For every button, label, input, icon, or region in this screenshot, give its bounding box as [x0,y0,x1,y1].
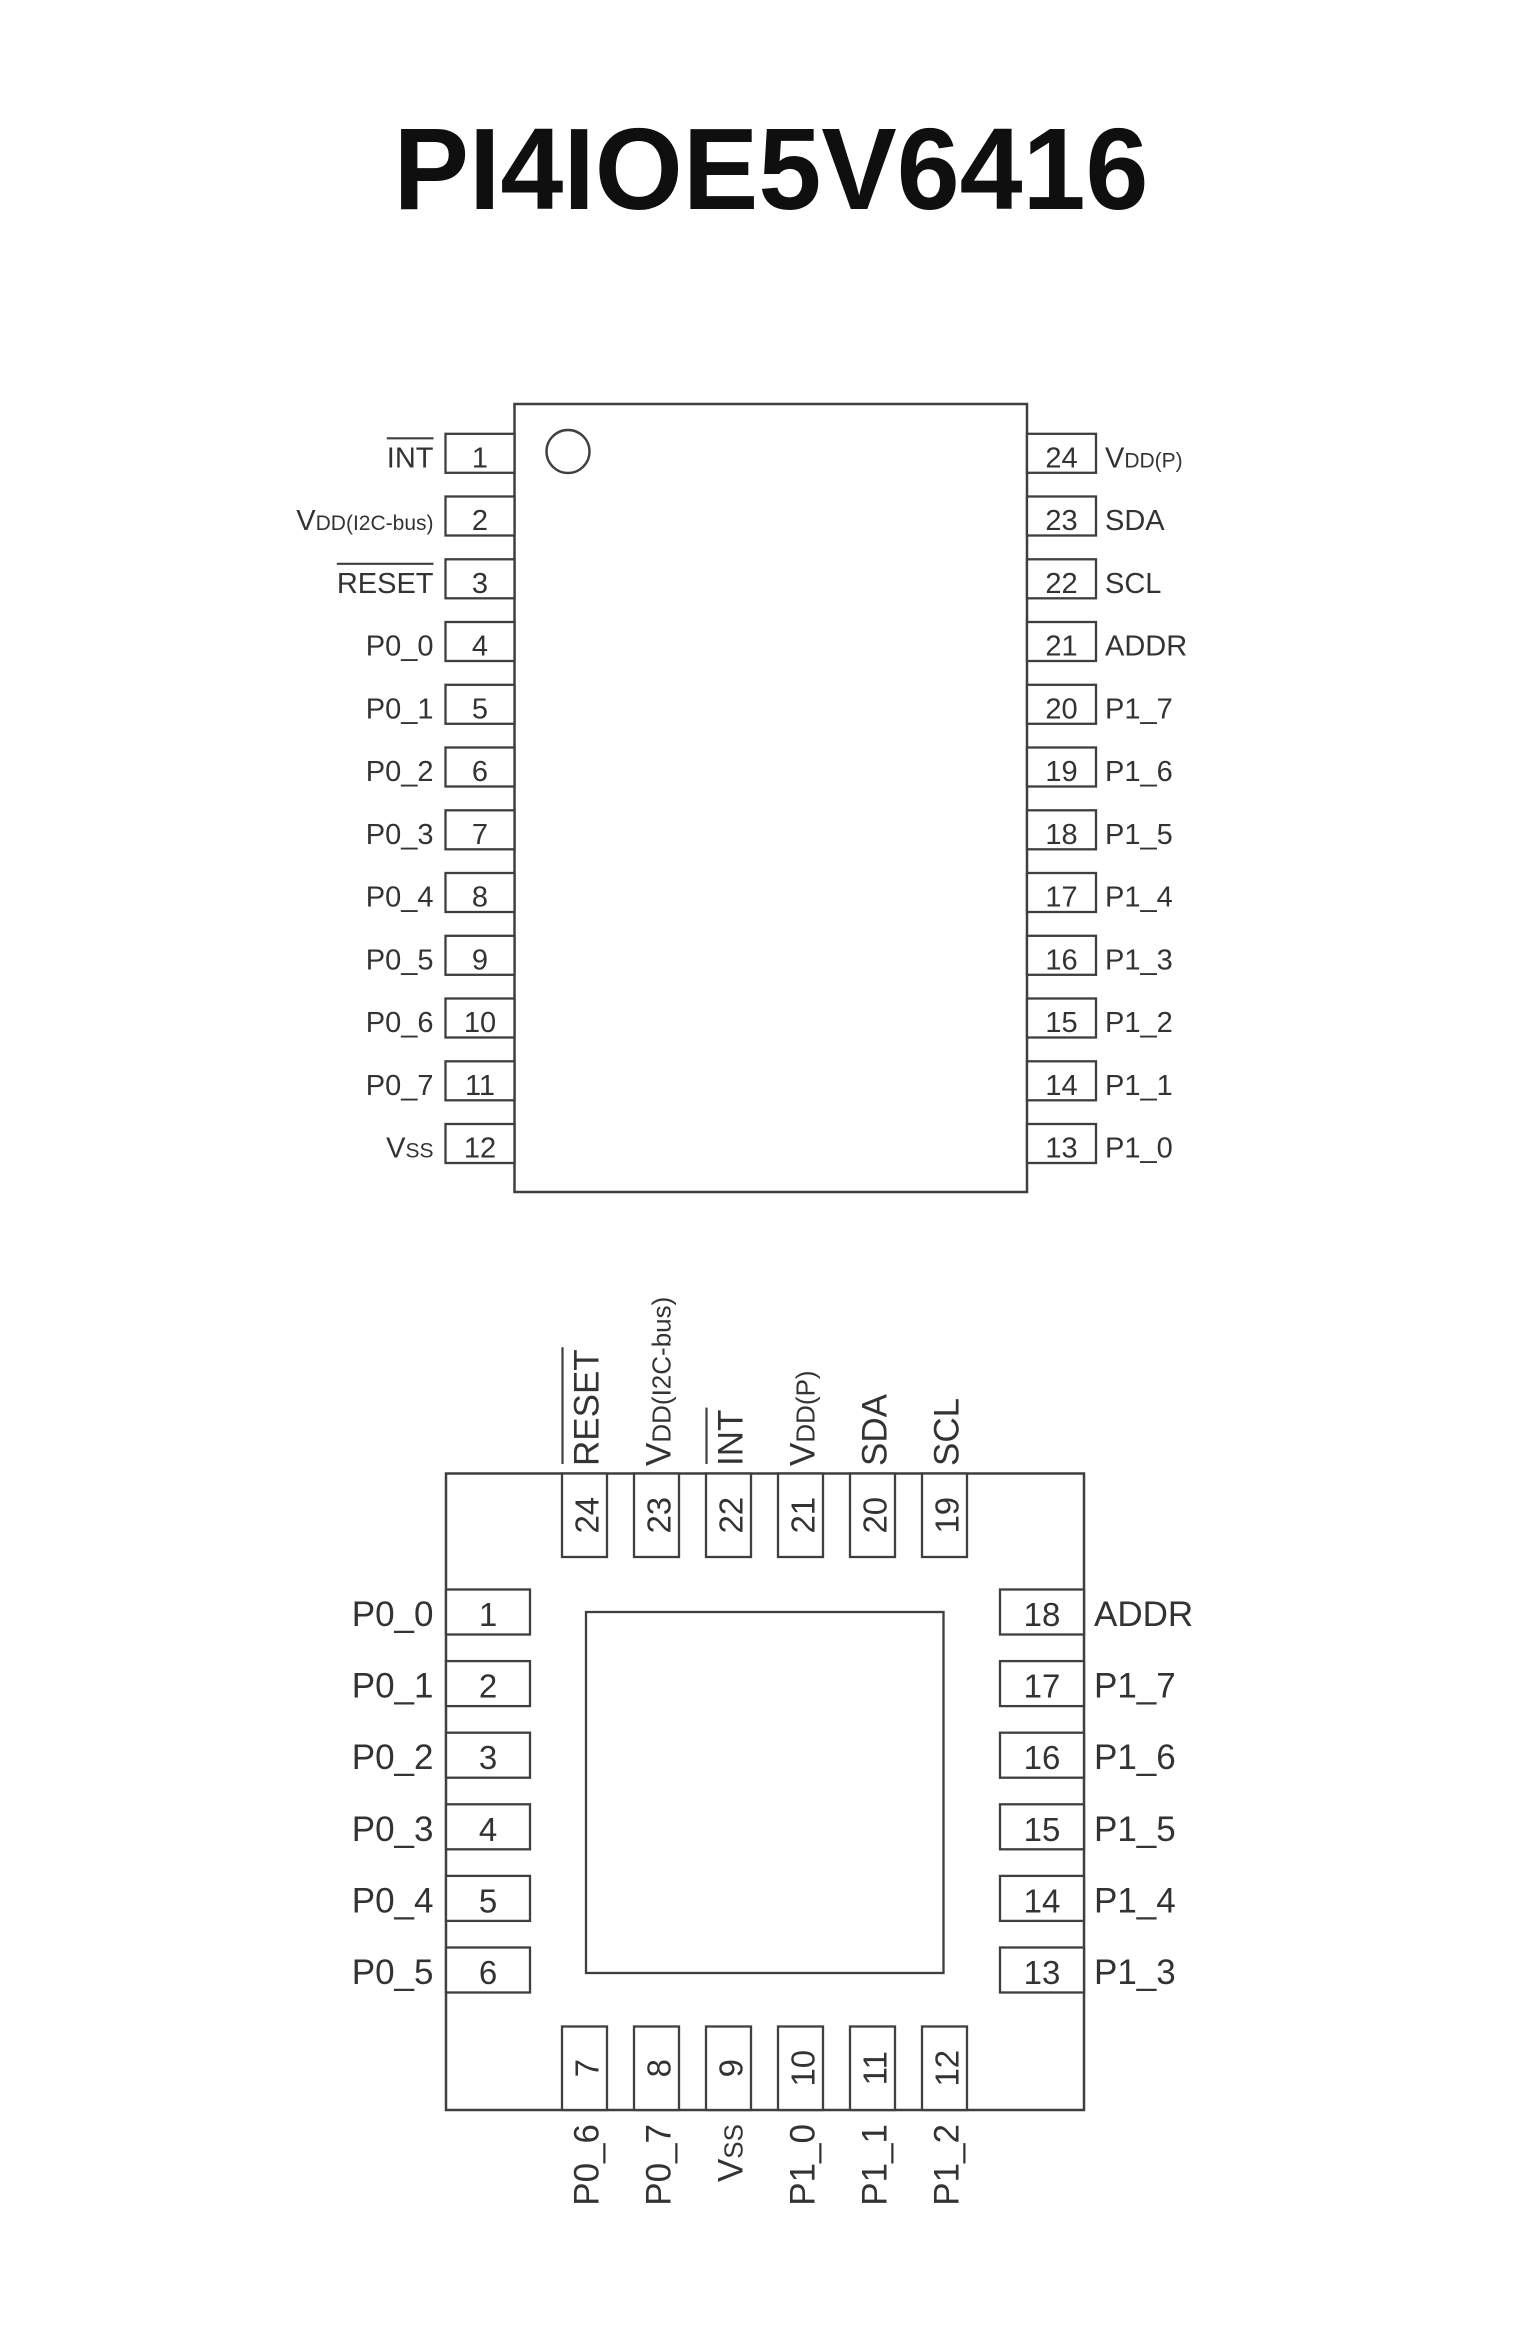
svg-text:7: 7 [569,2059,606,2077]
svg-text:10: 10 [785,2050,822,2087]
svg-text:8: 8 [472,882,488,914]
svg-text:P1_4: P1_4 [1094,1881,1176,1920]
svg-text:PI4IOE5V6416: PI4IOE5V6416 [394,104,1149,234]
svg-text:13: 13 [1045,1133,1077,1165]
svg-text:P0_3: P0_3 [366,819,434,851]
svg-text:24: 24 [1045,442,1077,474]
svg-text:5: 5 [472,693,488,725]
svg-text:3: 3 [479,1739,497,1776]
svg-text:P0_6: P0_6 [366,1007,434,1039]
svg-text:P1_2: P1_2 [1105,1007,1173,1039]
svg-text:P0_1: P0_1 [352,1667,434,1706]
svg-text:11: 11 [465,1070,495,1102]
svg-text:P1_0: P1_0 [1105,1133,1173,1165]
svg-text:22: 22 [1045,568,1077,600]
svg-text:10: 10 [464,1007,496,1039]
svg-text:17: 17 [1024,1668,1061,1705]
svg-text:P1_7: P1_7 [1105,693,1173,725]
svg-text:16: 16 [1045,944,1077,976]
svg-text:P0_0: P0_0 [366,631,434,663]
svg-text:P0_4: P0_4 [352,1881,434,1920]
svg-text:22: 22 [713,1497,750,1534]
svg-text:19: 19 [929,1497,966,1534]
svg-text:P1_0: P1_0 [784,2124,823,2206]
svg-text:15: 15 [1024,1811,1061,1848]
svg-text:P0_5: P0_5 [352,1953,434,1992]
svg-text:15: 15 [1045,1007,1077,1039]
svg-text:SDA: SDA [1105,505,1165,537]
svg-text:P0_0: P0_0 [352,1595,434,1634]
svg-text:P1_5: P1_5 [1094,1810,1176,1849]
svg-text:13: 13 [1024,1954,1061,1991]
svg-text:P0_6: P0_6 [568,2124,607,2206]
svg-text:18: 18 [1045,819,1077,851]
svg-text:14: 14 [1045,1070,1077,1102]
svg-text:P0_7: P0_7 [640,2124,679,2206]
svg-text:3: 3 [472,568,488,600]
svg-text:5: 5 [479,1882,497,1919]
svg-text:19: 19 [1045,756,1077,788]
svg-text:7: 7 [472,819,488,851]
svg-text:17: 17 [1045,882,1077,914]
svg-text:P0_1: P0_1 [366,693,434,725]
svg-text:24: 24 [569,1497,606,1534]
svg-text:23: 23 [1045,505,1077,537]
svg-text:20: 20 [857,1497,894,1534]
svg-text:2: 2 [479,1668,497,1705]
svg-text:SDA: SDA [856,1393,895,1466]
svg-text:INT: INT [387,442,434,474]
svg-text:ADDR: ADDR [1094,1595,1193,1634]
svg-text:P0_4: P0_4 [366,882,434,914]
svg-text:P0_7: P0_7 [366,1070,434,1102]
svg-text:P0_2: P0_2 [366,756,434,788]
svg-text:INT: INT [712,1410,751,1466]
svg-text:P1_1: P1_1 [856,2124,895,2206]
svg-text:9: 9 [472,944,488,976]
svg-text:4: 4 [472,631,488,663]
svg-text:P0_5: P0_5 [366,944,434,976]
svg-text:6: 6 [472,756,488,788]
svg-text:P0_3: P0_3 [352,1810,434,1849]
svg-text:P1_7: P1_7 [1094,1667,1176,1706]
svg-text:P1_3: P1_3 [1094,1953,1176,1992]
svg-text:SCL: SCL [1105,568,1161,600]
svg-text:P1_2: P1_2 [928,2124,967,2206]
svg-text:RESET: RESET [337,568,434,600]
svg-text:P1_1: P1_1 [1105,1070,1173,1102]
svg-text:4: 4 [479,1811,497,1848]
svg-text:1: 1 [472,442,488,474]
svg-text:P1_3: P1_3 [1105,944,1173,976]
svg-text:2: 2 [472,505,488,537]
svg-text:6: 6 [479,1954,497,1991]
svg-text:8: 8 [641,2059,678,2077]
svg-text:P1_6: P1_6 [1094,1738,1176,1777]
svg-text:20: 20 [1045,693,1077,725]
svg-text:21: 21 [1045,631,1077,663]
svg-text:1: 1 [479,1596,497,1633]
svg-text:P1_6: P1_6 [1105,756,1173,788]
svg-text:14: 14 [1024,1882,1061,1919]
svg-text:12: 12 [464,1133,496,1165]
svg-text:16: 16 [1024,1739,1061,1776]
svg-text:12: 12 [929,2050,966,2087]
svg-text:P1_5: P1_5 [1105,819,1173,851]
svg-text:ADDR: ADDR [1105,631,1187,663]
svg-text:21: 21 [785,1497,822,1534]
svg-text:18: 18 [1024,1596,1061,1633]
svg-text:P0_2: P0_2 [352,1738,434,1777]
svg-text:RESET: RESET [568,1349,607,1466]
svg-text:11: 11 [857,2051,894,2085]
svg-text:23: 23 [641,1497,678,1534]
svg-text:P1_4: P1_4 [1105,882,1173,914]
svg-text:SCL: SCL [928,1398,967,1466]
svg-text:9: 9 [713,2059,750,2077]
